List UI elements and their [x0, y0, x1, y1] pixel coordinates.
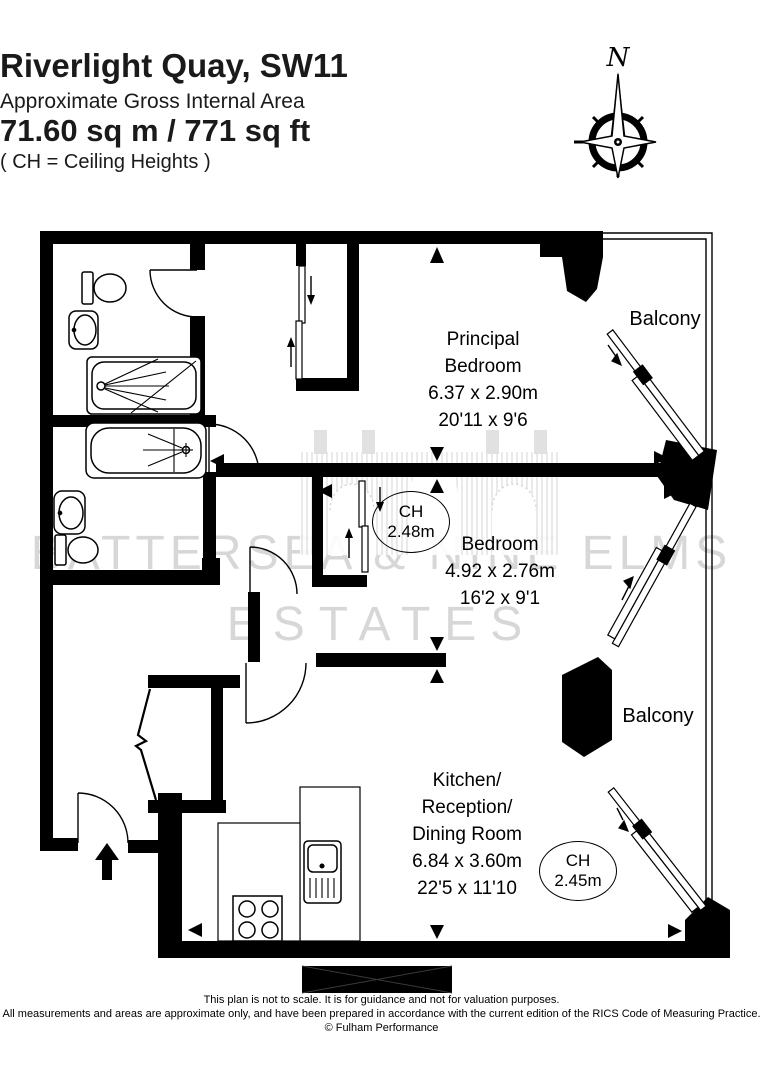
hob-icon [233, 896, 282, 941]
shower-icon [87, 357, 201, 414]
bathtub-icon [86, 423, 206, 478]
disclaimer-line2: All measurements and areas are approxima… [0, 1008, 763, 1020]
fixtures [54, 272, 360, 941]
room-name-line: Principal [363, 326, 603, 353]
ch-value: 2.48m [387, 522, 434, 542]
entrance-arrow-icon [95, 843, 119, 880]
ceiling-height-badge-bedroom: CH 2.48m [372, 491, 450, 553]
room-name-line: Bedroom [363, 353, 603, 380]
room-dims-imperial: 16'2 x 9'1 [400, 585, 600, 612]
principal-bedroom-label: Principal Bedroom 6.37 x 2.90m 20'11 x 9… [363, 326, 603, 434]
compass-icon: N [574, 43, 656, 178]
disclaimer-line1: This plan is not to scale. It is for gui… [0, 994, 763, 1006]
room-name-line: Kitchen/ [357, 767, 577, 794]
room-name-line: Reception/ [357, 794, 577, 821]
slide-direction-arrows [608, 345, 633, 831]
toilet-icon [55, 535, 98, 565]
room-dims-metric: 6.37 x 2.90m [363, 380, 603, 407]
floorplan-page: Riverlight Quay, SW11 Approximate Gross … [0, 0, 763, 1080]
room-dims-metric: 4.92 x 2.76m [400, 558, 600, 585]
sink-icon [54, 491, 85, 534]
balcony-bottom-label: Balcony [593, 705, 723, 728]
ch-label: CH [566, 851, 591, 871]
ch-value: 2.45m [554, 871, 601, 891]
scale-box [302, 966, 452, 993]
balcony-sliding-doors [601, 328, 708, 915]
ceiling-height-badge-kitchen: CH 2.45m [539, 841, 617, 901]
room-name-line: Dining Room [357, 821, 577, 848]
balcony-top-label: Balcony [600, 308, 730, 331]
compass-north-label: N [606, 43, 631, 73]
toilet-icon [82, 272, 126, 304]
copyright-line: © Fulham Performance [0, 1022, 763, 1034]
sink-icon [69, 311, 98, 349]
room-dims-imperial: 20'11 x 9'6 [363, 407, 603, 434]
ch-label: CH [399, 502, 424, 522]
kitchen-sink-icon [304, 841, 341, 903]
